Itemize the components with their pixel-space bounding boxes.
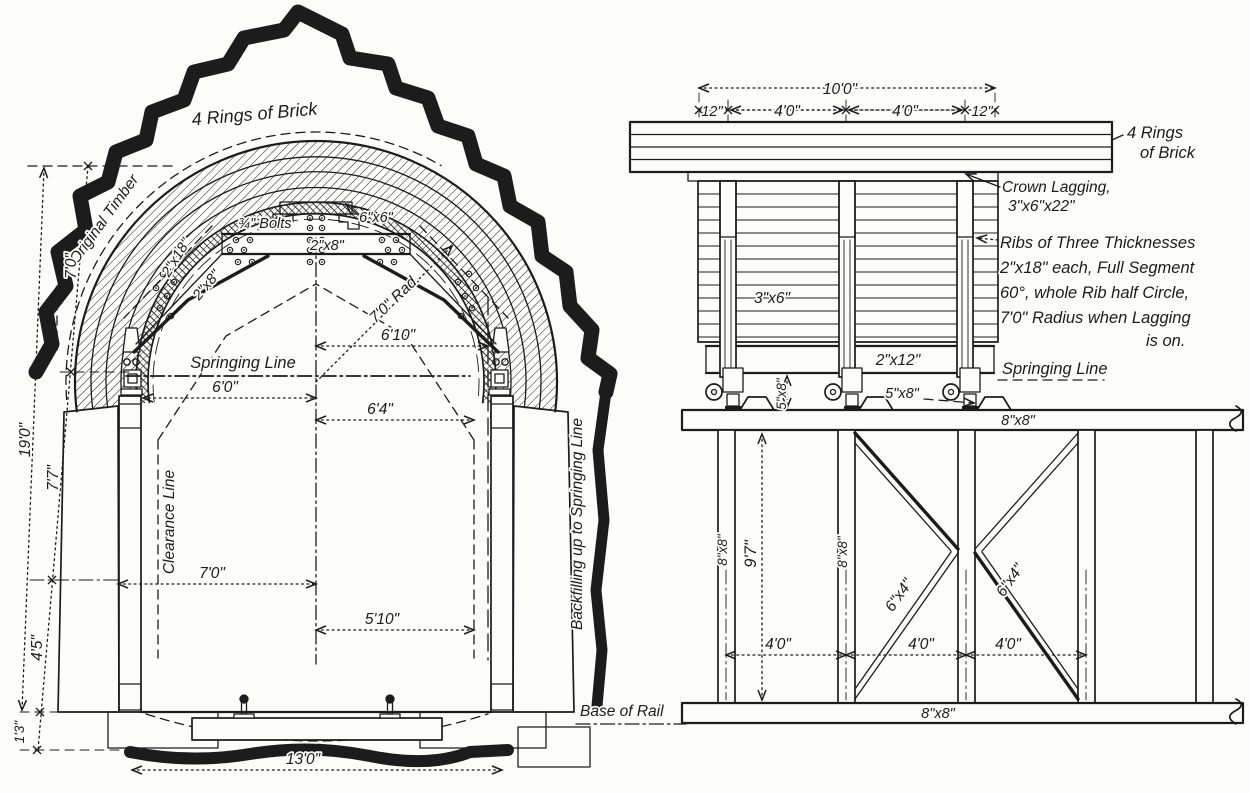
rail-right — [380, 695, 400, 718]
label-7-0-radius: 7'0" Rad. — [366, 271, 423, 327]
dim-12-right: 12" — [971, 104, 993, 120]
dim-7-0-height: 7'0" — [63, 252, 80, 279]
dim-1-3: 1'3" — [12, 720, 27, 744]
left-view-cross-section: 4 Rings of Brick Original Timber ¾" Bolt… — [12, 12, 686, 770]
dim-4-0-panel1: 4'0" — [765, 636, 792, 653]
dim-4-0-panel3: 4'0" — [995, 636, 1022, 653]
right-view-elevation: 4 Rings of Brick Crown Lagging, 3"x6"x22… — [630, 81, 1243, 724]
frame-post-4 — [1078, 430, 1095, 703]
cap-beam-8x8 — [682, 410, 1243, 430]
dim-4-0-left: 4'0" — [774, 103, 801, 120]
label-3x6-lagging: 3"x6" — [754, 290, 791, 307]
sill-beam-8x8 — [682, 703, 1243, 723]
label-8x8-post2: 8"x8" — [835, 535, 850, 568]
label-ribs-note-3: 60°, whole Rib half Circle, — [1000, 284, 1189, 302]
label-rings-right-1: 4 Rings — [1127, 124, 1183, 142]
label-5x8-wedge: 5"x8" — [885, 386, 920, 402]
dim-7-7: 7'7" — [45, 464, 62, 491]
label-6x4-brace1: 6"x4" — [882, 575, 917, 615]
label-backfilling: Backfilling up to Springing Line — [569, 418, 586, 630]
label-rings-right-2: of Brick — [1140, 144, 1196, 162]
label-ribs-note-5: is on. — [1146, 332, 1185, 350]
dim-13-0: 13'0" — [286, 751, 322, 768]
label-2x8-beam: 2"x8" — [309, 238, 345, 254]
right-wall-post — [491, 396, 513, 712]
dim-6-0: 6'0" — [212, 379, 239, 396]
label-6x4-brace2: 6"x4" — [993, 560, 1028, 600]
label-clearance-line: Clearance Line — [161, 469, 178, 574]
frame-post-3 — [958, 430, 975, 703]
dim-12-left: 12" — [701, 104, 723, 120]
label-springing-line-left: Springing Line — [190, 354, 296, 372]
label-ribs-note-4: 7'0" Radius when Lagging — [1000, 309, 1191, 327]
label-springing-line-right: Springing Line — [1002, 360, 1108, 378]
dim-5x8-vertical: 5"x8" — [774, 377, 789, 410]
label-8x8-post1: 8"x8" — [715, 533, 730, 566]
tunnel-timbering-plate: 4 Rings of Brick Original Timber ¾" Bolt… — [0, 0, 1250, 793]
left-side-wall — [58, 406, 119, 712]
railroad-tie — [192, 718, 442, 740]
label-ribs-note-1: Ribs of Three Thicknesses — [1000, 234, 1195, 252]
dim-5-10: 5'10" — [365, 611, 401, 628]
brick-band — [630, 122, 1112, 172]
label-ribs-note-2: 2"x18" each, Full Segment — [999, 259, 1196, 277]
rail-left — [234, 695, 254, 718]
dim-10-0: 10'0" — [823, 81, 859, 98]
floor-and-track — [108, 695, 590, 767]
dim-7-0-width: 7'0" — [199, 565, 226, 582]
label-2x8-diagonal: 2"x8" — [189, 267, 224, 304]
frame-posts — [718, 430, 1213, 703]
dim-4-0-right: 4'0" — [892, 103, 919, 120]
label-base-of-rail: Base of Rail — [580, 703, 664, 720]
label-bolts: ¾" Bolts — [238, 216, 292, 232]
dim-6-4: 6'4" — [367, 401, 394, 418]
right-side-wall — [513, 406, 574, 712]
label-2x12-plank: 2"x12" — [875, 352, 922, 369]
label-crown-lagging-2: 3"x6"x22" — [1008, 198, 1076, 215]
label-8x8-cap: 8"x8" — [1001, 413, 1036, 429]
dim-9-7: 9'7" — [742, 539, 760, 568]
left-wall-post — [119, 396, 141, 712]
label-8x8-sill: 8"x8" — [921, 706, 956, 722]
label-6x6-block: 6"x6" — [359, 210, 394, 226]
dim-4-0-panel2: 4'0" — [908, 636, 935, 653]
dim-6-10: 6'10" — [381, 327, 417, 344]
dim-4-5: 4'5" — [29, 634, 46, 661]
drawing-canvas: 4 Rings of Brick Original Timber ¾" Bolt… — [0, 0, 1250, 793]
label-rings-of-brick-left: 4 Rings of Brick — [191, 98, 319, 129]
crown-lagging-strip — [688, 172, 998, 181]
dim-19-0: 19'0" — [17, 421, 34, 457]
frame-post-5 — [1196, 430, 1213, 703]
label-crown-lagging-1: Crown Lagging, — [1002, 179, 1111, 196]
